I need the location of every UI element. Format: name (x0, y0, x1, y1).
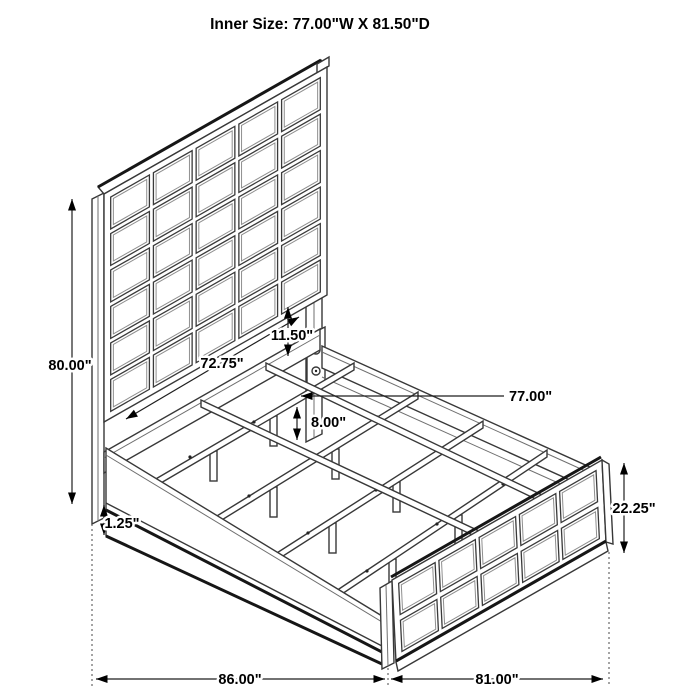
dim-label-side-rail-length: 86.00" (218, 672, 261, 688)
near-rail-band (106, 503, 382, 646)
diagram-canvas: 80.00" 1.25" 72.75" 11.50" 77.00" 8.00" (0, 0, 700, 700)
slat-leg (329, 523, 336, 553)
dim-label-slat-leg-height: 8.00" (311, 415, 346, 431)
far-rail-board (322, 346, 592, 490)
bed-dimension-diagram: 80.00" 1.25" 72.75" 11.50" 77.00" 8.00" (0, 0, 700, 700)
slat-leg (210, 451, 217, 481)
dim-label-overall-height: 80.00" (48, 358, 91, 374)
bolt-dot (315, 370, 317, 372)
dim-label-headboard-rail-gap: 11.50" (271, 328, 313, 344)
dimension-footboard-width: 81.00" (391, 672, 603, 688)
dimension-footboard-height: 22.25" (612, 463, 655, 553)
dimension-side-rail-length: 86.00" (96, 672, 385, 688)
near-side-rail (106, 448, 382, 664)
dimension-overall-height: 80.00" (48, 199, 91, 504)
diagram-title: Inner Size: 77.00"W X 81.50"D (210, 16, 430, 33)
dim-label-inner-width: 77.00" (509, 389, 552, 405)
slat-leg (270, 487, 277, 517)
dim-label-footboard-height: 22.25" (612, 501, 655, 517)
dim-label-headboard-width: 72.75" (200, 356, 243, 372)
dim-label-footboard-width: 81.00" (475, 672, 518, 688)
dim-label-rail-thickness: 1.25" (104, 516, 139, 532)
